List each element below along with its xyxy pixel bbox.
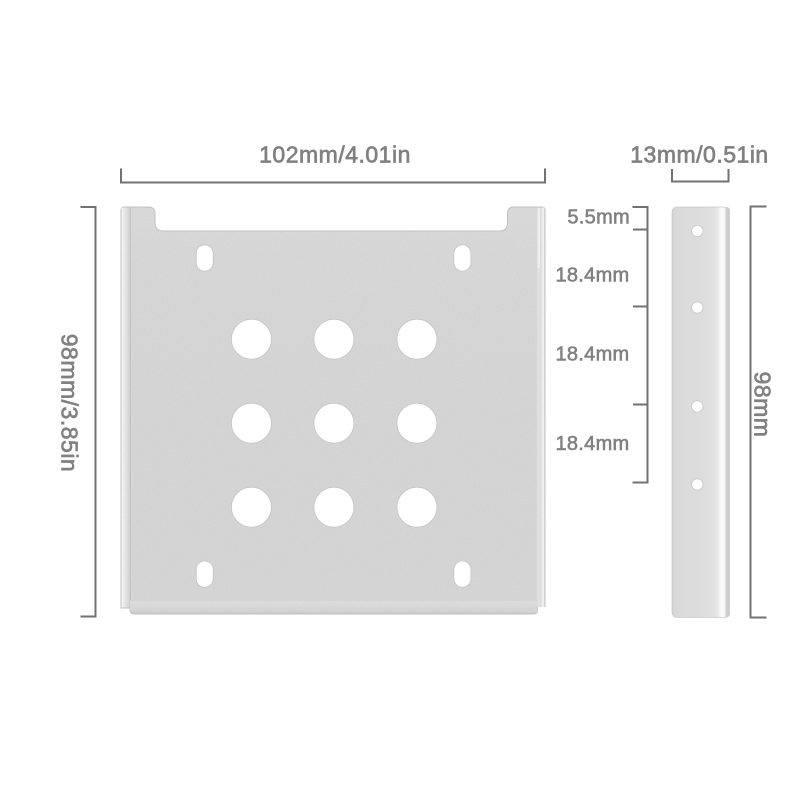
svg-text:5.5mm: 5.5mm [567,207,630,229]
svg-text:98mm: 98mm [749,372,775,438]
svg-text:18.4mm: 18.4mm [555,265,629,287]
svg-text:102mm/4.01in: 102mm/4.01in [259,142,411,168]
svg-text:18.4mm: 18.4mm [555,344,629,366]
svg-text:98mm/3.85in: 98mm/3.85in [56,334,82,472]
svg-text:18.4mm: 18.4mm [555,433,629,455]
svg-text:13mm/0.51in: 13mm/0.51in [630,142,768,168]
